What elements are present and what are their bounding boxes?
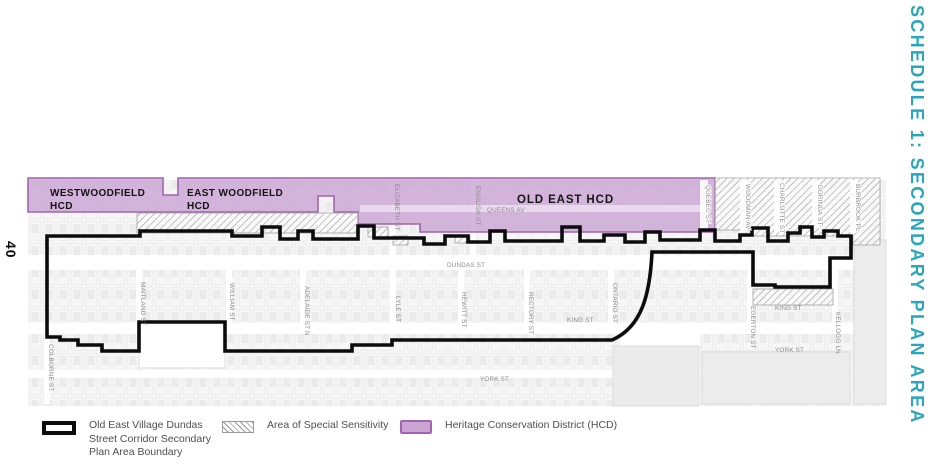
street-label-egerton-st: EGERTON ST	[749, 306, 756, 349]
page-number: 40	[3, 241, 19, 259]
street-label-queens-av: QUEENS AV	[487, 207, 525, 214]
street-label-elizabeth-st: ELIZABETH ST	[393, 184, 400, 231]
boundary-swatch	[42, 421, 76, 435]
street-label-adelaide-st-n: ADELAIDE ST N	[303, 286, 310, 336]
street-label-dorinda-st: DORINDA ST	[816, 185, 823, 226]
east-woodfield-hcd-label-2: HCD	[187, 201, 210, 212]
legend-item-boundary: Old East Village Dundas Street Corridor …	[42, 419, 221, 460]
street-label-maitland-st: MAITLAND ST	[139, 282, 146, 326]
street-label-burbrook-pl: BURBROOK PL	[854, 184, 861, 232]
east-woodfield-hcd-label: EAST WOODFIELD	[187, 188, 283, 199]
westwoodfield-hcd-label: WESTWOODFIELD	[50, 188, 145, 199]
street-label-kellogg-ln: KELLOGG LN	[834, 312, 841, 354]
legend-label-boundary: Old East Village Dundas Street Corridor …	[89, 419, 221, 460]
street-label-lyle-st: LYLE ST	[394, 296, 401, 322]
westwoodfield-hcd-label-2: HCD	[50, 201, 73, 212]
legend-item-hcd: Heritage Conservation District (HCD)	[400, 419, 617, 434]
legend-label-hcd: Heritage Conservation District (HCD)	[445, 419, 617, 433]
street-label-king-st-east: KING ST	[775, 305, 802, 312]
secondary-plan-map: WESTWOODFIELD HCD EAST WOODFIELD HCD OLD…	[0, 0, 934, 469]
street-label-quebec-st: QUEBEC ST	[704, 185, 711, 223]
map-canvas: WESTWOODFIELD HCD EAST WOODFIELD HCD OLD…	[0, 0, 934, 469]
legend-item-sensitivity: Area of Special Sensitivity	[222, 419, 388, 433]
street-label-charlotte-st: CHARLOTTE ST	[778, 183, 785, 233]
street-label-york-st: YORK ST	[480, 376, 509, 383]
queens-av-road	[360, 205, 708, 212]
hcd-swatch	[400, 420, 432, 434]
street-label-english-st: ENGLISH ST	[474, 186, 481, 225]
street-label-king-st: KING ST	[567, 317, 594, 324]
street-label-york-st-east: YORK ST	[775, 347, 804, 354]
old-east-hcd-label: OLD EAST HCD	[517, 194, 614, 206]
street-label-colborne-st: COLBORNE ST	[47, 344, 54, 391]
street-label-ontario-st: ONTARIO ST	[611, 283, 618, 323]
legend-label-sensitivity: Area of Special Sensitivity	[267, 419, 388, 433]
sensitivity-swatch	[222, 421, 254, 433]
street-label-rectory-st: RECTORY ST	[527, 292, 534, 334]
legend: Old East Village Dundas Street Corridor …	[42, 419, 862, 467]
schedule-title: SCHEDULE 1: SECONDARY PLAN AREA	[906, 5, 927, 465]
street-label-william-st: WILLIAM ST	[228, 283, 235, 321]
street-label-woodman-av: WOODMAN AV	[744, 184, 751, 230]
street-label-dundas-st: DUNDAS ST	[447, 262, 485, 269]
street-label-hewitt-st: HEWITT ST	[460, 292, 467, 328]
